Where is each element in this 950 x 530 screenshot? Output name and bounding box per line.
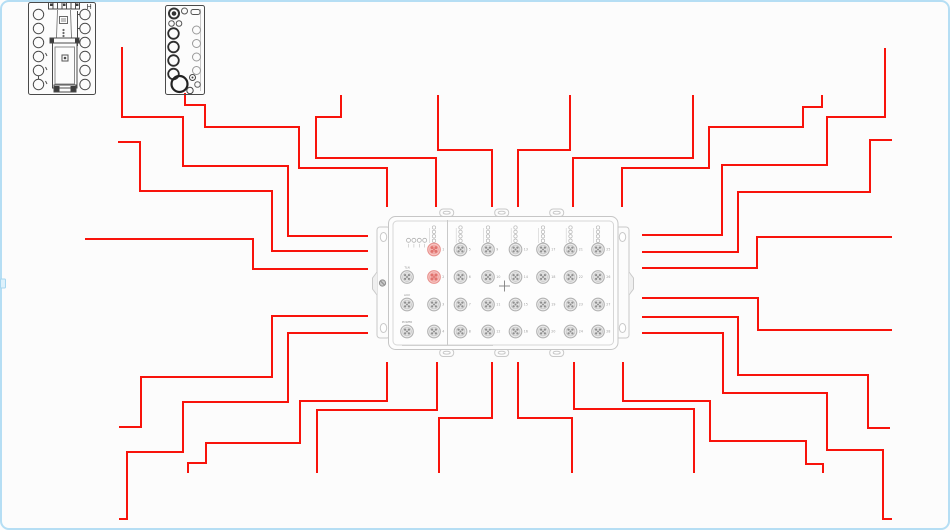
io-port-27[interactable] xyxy=(592,298,605,311)
io-port-22[interactable] xyxy=(564,271,577,284)
svg-text:21: 21 xyxy=(579,248,583,252)
svg-text:6: 6 xyxy=(469,275,471,279)
svg-text:14: 14 xyxy=(524,275,528,279)
wire-top-2[interactable] xyxy=(316,95,436,207)
io-port-11[interactable] xyxy=(482,298,495,311)
io-port-26[interactable] xyxy=(592,271,605,284)
svg-text:9: 9 xyxy=(496,248,498,252)
io-port-24[interactable] xyxy=(564,325,577,338)
aux-port-aux[interactable] xyxy=(401,298,414,311)
io-port-21[interactable] xyxy=(564,243,577,256)
wire-top-3[interactable] xyxy=(438,95,492,207)
svg-text:11: 11 xyxy=(496,303,500,307)
svg-text:POWER: POWER xyxy=(402,320,412,324)
svg-text:28: 28 xyxy=(606,330,610,334)
io-port-14[interactable] xyxy=(509,271,522,284)
io-port-9[interactable] xyxy=(482,243,495,256)
svg-text:19: 19 xyxy=(551,303,555,307)
io-port-5[interactable] xyxy=(454,243,467,256)
svg-text:AUX: AUX xyxy=(404,293,410,297)
svg-text:17: 17 xyxy=(551,248,555,252)
wire-bottom-3[interactable] xyxy=(439,362,492,473)
io-port-6[interactable] xyxy=(454,271,467,284)
svg-text:25: 25 xyxy=(606,248,610,252)
wire-bottom-2[interactable] xyxy=(317,362,437,473)
aux-port-power[interactable] xyxy=(401,325,414,338)
wire-right-4[interactable] xyxy=(642,298,892,330)
wire-bottom-4[interactable] xyxy=(518,362,572,473)
svg-text:22: 22 xyxy=(579,275,583,279)
main-module[interactable]: 1234TLNAUXPOWER5678910111213141516171819… xyxy=(373,209,634,357)
svg-text:12: 12 xyxy=(496,330,500,334)
svg-text:15: 15 xyxy=(524,303,528,307)
svg-text:1: 1 xyxy=(442,248,444,252)
bus-port-3[interactable] xyxy=(428,298,441,311)
svg-text:5: 5 xyxy=(469,248,471,252)
diagram-canvas[interactable]: H xyxy=(0,0,950,530)
wire-right-1[interactable] xyxy=(642,48,885,235)
small-module-1[interactable]: H xyxy=(29,3,96,95)
bus-port-2[interactable] xyxy=(428,271,441,284)
wire-top-1[interactable] xyxy=(185,93,387,207)
io-port-10[interactable] xyxy=(482,271,495,284)
svg-text:26: 26 xyxy=(606,275,610,279)
bus-port-1[interactable] xyxy=(428,243,441,256)
svg-text:27: 27 xyxy=(606,303,610,307)
io-port-16[interactable] xyxy=(509,325,522,338)
io-port-28[interactable] xyxy=(592,325,605,338)
svg-text:24: 24 xyxy=(579,330,583,334)
svg-text:13: 13 xyxy=(524,248,528,252)
wire-bottom-5[interactable] xyxy=(574,362,694,473)
svg-text:7: 7 xyxy=(469,303,471,307)
wire-right-6[interactable] xyxy=(642,333,892,519)
svg-text:16: 16 xyxy=(524,330,528,334)
io-port-18[interactable] xyxy=(537,271,550,284)
svg-text:3: 3 xyxy=(442,303,444,307)
wire-top-5[interactable] xyxy=(573,95,693,207)
io-port-20[interactable] xyxy=(537,325,550,338)
svg-text:20: 20 xyxy=(551,330,555,334)
svg-text:23: 23 xyxy=(579,303,583,307)
diagram-page: H xyxy=(0,0,950,530)
svg-text:10: 10 xyxy=(496,275,500,279)
wire-left-1[interactable] xyxy=(122,47,368,236)
wire-left-5[interactable] xyxy=(119,333,368,519)
wire-left-3[interactable] xyxy=(85,239,368,269)
io-port-19[interactable] xyxy=(537,298,550,311)
io-port-15[interactable] xyxy=(509,298,522,311)
aux-port-tln[interactable] xyxy=(401,271,414,284)
io-port-23[interactable] xyxy=(564,298,577,311)
io-port-12[interactable] xyxy=(482,325,495,338)
io-port-17[interactable] xyxy=(537,243,550,256)
io-port-8[interactable] xyxy=(454,325,467,338)
io-port-25[interactable] xyxy=(592,243,605,256)
bus-port-4[interactable] xyxy=(428,325,441,338)
svg-text:2: 2 xyxy=(442,275,444,279)
io-port-13[interactable] xyxy=(509,243,522,256)
svg-text:18: 18 xyxy=(551,275,555,279)
svg-text:8: 8 xyxy=(469,330,471,334)
svg-text:4: 4 xyxy=(442,330,444,334)
panel-collapse-tab[interactable] xyxy=(1,279,6,288)
small-module-2[interactable] xyxy=(166,6,205,95)
io-port-7[interactable] xyxy=(454,298,467,311)
wire-top-4[interactable] xyxy=(518,95,570,207)
svg-text:TLN: TLN xyxy=(403,265,409,269)
